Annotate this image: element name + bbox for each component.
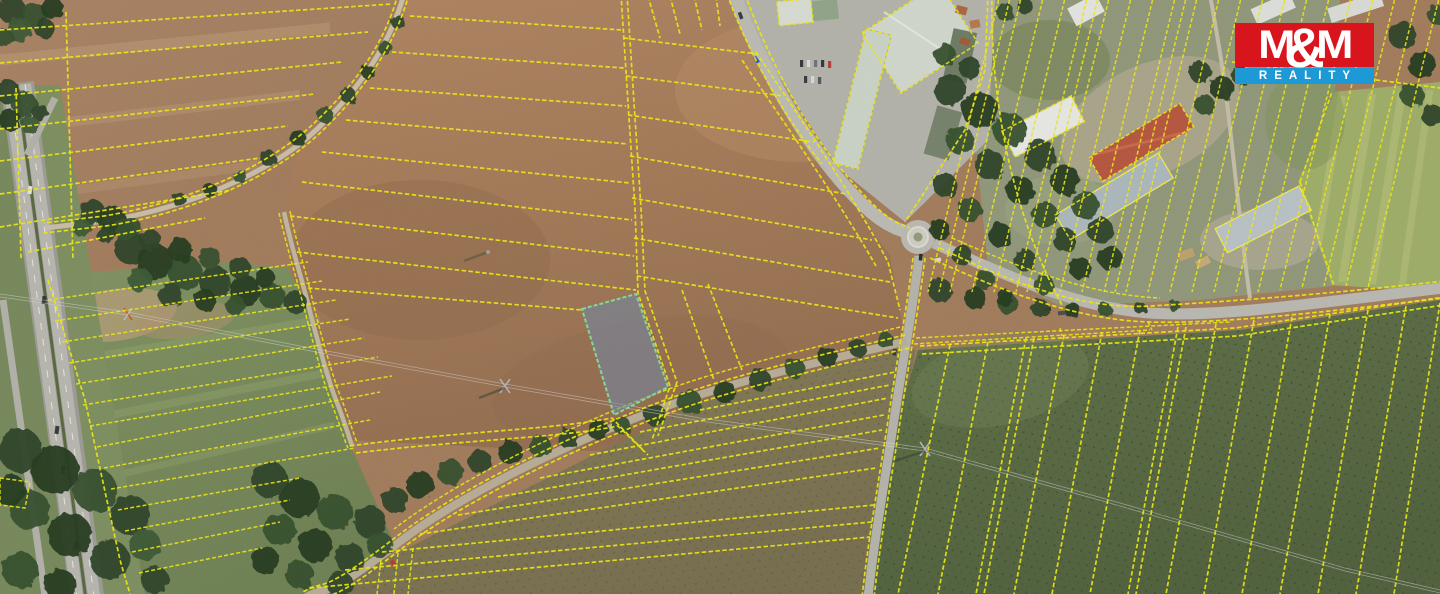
- mm-reality-logo: M&M REALITY: [1235, 23, 1374, 84]
- logo-red-box: M&M: [1235, 23, 1374, 67]
- logo-ampersand: &: [1284, 20, 1324, 76]
- photo-grain: [0, 0, 1440, 594]
- aerial-map: [0, 0, 1440, 594]
- map-image: M&M REALITY: [0, 0, 1440, 594]
